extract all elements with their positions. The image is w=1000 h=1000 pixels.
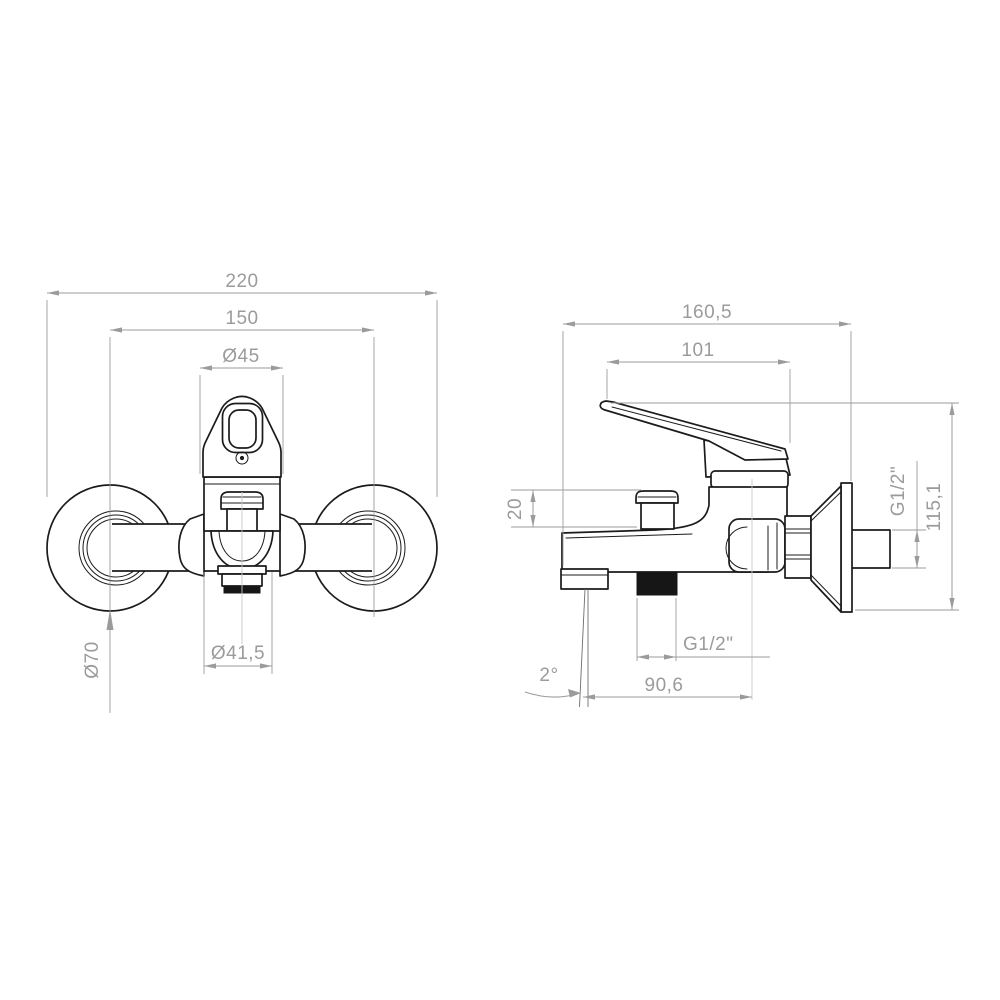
- dim-wall-thread-label: G1/2": [888, 466, 909, 516]
- technical-drawing: 220 150 Ø45 Ø70 Ø41,5: [0, 0, 1000, 1000]
- aerator-side: [561, 569, 608, 589]
- dim-spout-angle-label: 2°: [539, 665, 558, 686]
- escutcheon-plate-side: [841, 483, 852, 612]
- dim-diverter-height: 20: [505, 490, 641, 527]
- dim-shower-thread-label: G1/2": [683, 634, 733, 655]
- wall-connector-stub: [851, 530, 890, 568]
- dim-aerator-diameter-label: Ø41,5: [211, 643, 265, 664]
- dim-overall-height-label: 115,1: [924, 483, 945, 532]
- dim-mount-centers-label: 150: [225, 308, 258, 329]
- dim-spout-reach-label: 90,6: [645, 675, 684, 696]
- dim-wall-thread: G1/2": [888, 461, 926, 568]
- dim-spout-reach: 90,6: [583, 675, 752, 697]
- handle-screw: [240, 456, 244, 460]
- dim-cartridge-diameter-label: Ø45: [222, 346, 259, 367]
- front-view: 220 150 Ø45 Ø70 Ø41,5: [47, 271, 437, 713]
- dim-escutcheon-diameter-label: Ø70: [82, 641, 103, 678]
- handle-front: [203, 397, 281, 478]
- dim-shower-thread: G1/2": [637, 598, 770, 661]
- connector-nut-side: [726, 519, 785, 572]
- angle-ref-tilted: [580, 589, 586, 707]
- dim-diverter-height-label: 20: [505, 498, 526, 520]
- dim-overall-depth-label: 160,5: [682, 302, 732, 323]
- handle-side: [600, 401, 788, 460]
- dim-spout-angle: 2°: [525, 665, 581, 698]
- shower-outlet-thread: [637, 572, 677, 595]
- wall-nut-side: [785, 516, 811, 578]
- dim-handle-reach-label: 101: [681, 340, 714, 361]
- escutcheon-cone-side: [811, 486, 841, 612]
- dim-overall-width-label: 220: [225, 271, 258, 292]
- side-view: 160,5 101 20 115,1 G1: [505, 302, 959, 707]
- diverter-knob-side: [636, 491, 678, 529]
- cartridge-neck-side: [711, 471, 788, 488]
- dim-escutcheon-diameter: Ø70: [82, 609, 114, 679]
- drawing-canvas: 220 150 Ø45 Ø70 Ø41,5: [0, 0, 1000, 1000]
